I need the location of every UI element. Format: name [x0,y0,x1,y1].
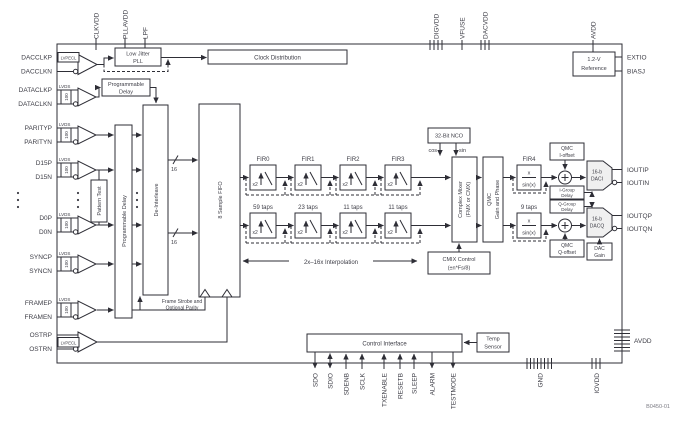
fir-chain: x2 x2 x2 x2 FIR0 FIR1 FIR2 FIR3 x2 x2 x2… [240,157,451,266]
parity-buffer [78,126,96,144]
fir1-label: FIR1 [301,157,315,163]
pin-label-extio: EXTIO [627,55,647,62]
buffer-type-label: LVDS [59,297,70,302]
pin-label-d15p: D15P [36,160,52,167]
qmc-label: QMC [487,193,493,206]
pin-label-dacvdd: DACVDD [483,11,490,39]
fir-x2: x2 [298,182,304,188]
pin-label-ioutqp: IOUTQP [627,213,652,220]
buffer-type-label: LVDS [59,122,70,127]
control-section: Control Interface Temp Sensor SDO SDIO S… [307,333,601,409]
pin-label-framep: FRAMEP [25,300,52,307]
fir-x2: x2 [298,230,304,236]
fir2-label: FIR2 [346,157,360,163]
fir3-taps: 11 taps [388,205,407,211]
prog-delay-vertical-label: Programmable Delay [122,195,128,247]
pin-label-framen: FRAMEN [25,314,53,321]
dacq-label: DACQ [590,224,605,230]
pll-label: Low Jitter [126,52,150,58]
inverting-bubble [73,69,77,73]
reference-label: Reference [581,66,606,72]
cos-label: cos [428,148,437,154]
qmc-q-offset-label: QMC [561,243,573,249]
sync-buffer [78,255,96,273]
pin-label-parityn: PARITYN [24,139,52,146]
dataclk-buffer [78,88,96,106]
termination-label: 100 [64,93,69,101]
prog-delay-label: Delay [119,90,133,96]
pin-label-digvdd: DIGVDD [434,13,441,39]
pin-label-ostrn: OSTRN [29,346,52,353]
deinterleave-label: De-Interleave [154,183,160,216]
right-pins: EXTIO BIASJ IOUTIP IOUTIN IOUTQP IOUTQN … [614,55,653,352]
q-group-delay-label: Delay [561,207,573,212]
fir-x2: x2 [388,182,394,188]
pin-label-resetb: RESETB [398,373,405,399]
fir-x2: x2 [253,230,259,236]
reference-label: 1.2-V [587,57,600,63]
top-pins: CLKVDD PLLAVDD LPF DIGVDD VFUSE DACVDD A… [94,10,598,52]
figure-code: B0450-01 [646,404,670,410]
prog-delay-label: Programmable [108,82,144,88]
clock-distribution-label: Clock Distribution [254,56,301,62]
mixer-label: Complex Mixer [458,181,464,218]
fifo-label: 8 Sample FIFO [218,181,224,219]
frame-strobe-label: Optional Parity [166,306,199,312]
mixer-label: (FMX or CMX) [466,182,472,218]
pin-label-avdd-top: AVDD [591,21,598,39]
pin-label-d0p: D0P [39,215,52,222]
pin-label-d15n: D15N [35,174,52,181]
dac-gain-label: Gain [594,253,605,259]
bus-width-label: 16 [171,167,177,173]
pin-label-ioutip: IOUTIP [627,167,649,174]
buffer-type-label: LVDS [59,84,70,89]
pin-label-txenable: TXENABLE [382,372,389,407]
pin-label-iovdd: IOVDD [594,373,601,394]
i-group-delay-label: Delay [561,193,573,198]
nco-mixer: 32-Bit NCO cos sin Complex Mixer (FMX or… [428,128,516,274]
pll-label: PLL [133,59,143,65]
pin-label-parityp: PARITYP [25,125,52,132]
qmc-i-offset-label: I-offset [559,153,575,159]
pin-label-lpf: LPF [143,27,150,39]
pattern-test-label: Pattern Test [97,186,103,216]
fir0-label: FIR0 [256,157,270,163]
output-stage: FIR4 x sin(x) 9 taps x sin(x) QMC I-offs… [513,143,622,260]
block-reference [573,52,615,76]
block-diagram: CLKVDD PLLAVDD LPF DIGVDD VFUSE DACVDD A… [0,0,697,433]
pin-label-sclk: SCLK [360,372,367,390]
buffer-type-label: LVDS [59,251,70,256]
fir-x2: x2 [253,182,259,188]
dacclk-buffer [78,55,97,75]
fir-x2: x2 [343,230,349,236]
daci-label: DACI [591,177,603,183]
pin-label-avdd-right: AVDD [634,338,652,345]
pin-label-dacclkp: DACCLKP [21,55,52,62]
pin-label-pllavdd: PLLAVDD [123,10,130,39]
temp-sensor-label: Sensor [484,345,502,351]
sinc-numerator: x [528,219,531,225]
cmix-label: (±n*Fs/8) [448,266,471,272]
i-group-delay-label: I-Group [559,188,575,193]
pin-label-syncp: SYNCP [30,254,52,261]
bus-width-label: 16 [171,240,177,246]
data-path: Pattern Test Programmable Delay De-Inter… [91,104,240,342]
temp-sensor-label: Temp [486,337,499,343]
sin-label: sin [459,148,466,154]
fir1-taps: 23 taps [298,205,318,211]
fir4-label: FIR4 [522,157,536,163]
d15-buffer [78,161,96,179]
buffer-type-label: LVDS [59,212,70,217]
buffer-type-label: LVDS [59,157,70,162]
pin-label-dacclkn: DACCLKN [21,69,52,76]
pin-label-dataclkp: DATACLKP [19,87,52,94]
pin-label-testmode: TESTMODE [451,372,458,409]
pin-label-ioutqn: IOUTQN [627,226,653,233]
sinc-denominator: sin(x) [522,231,536,237]
termination-label: 100 [64,166,69,174]
block-complex-mixer [452,157,477,242]
termination-label: 100 [64,260,69,268]
pin-label-sdo: SDO [313,373,320,387]
reference-section: 1.2-V Reference [573,52,622,76]
dac-gain-label: DAC [594,246,605,252]
sinc-numerator: x [528,171,531,177]
fir4-taps: 9 taps [521,205,537,211]
qmc-q-offset-label: Q-offset [558,250,576,256]
fir2-taps: 11 taps [343,205,362,211]
pin-label-dataclkn: DATACLKN [18,101,52,108]
block-dacq [587,208,612,237]
interpolation-label: 2x–16x Interpolation [304,260,358,266]
fir0-taps: 59 taps [253,205,273,211]
pin-label-sdenb: SDENB [344,373,351,395]
fir-x2: x2 [388,230,394,236]
pin-label-sleep: SLEEP [412,373,419,394]
pin-label-gnd: GND [538,373,545,388]
frame-strobe-label: Frame Strobe and [162,299,203,305]
daci-label: 16-b [592,170,602,176]
pin-label-vfuse: VFUSE [460,17,467,39]
q-group-delay-label: Q-Group [558,202,576,207]
pin-label-ostrp: OSTRP [30,332,52,339]
diagram-canvas: CLKVDD PLLAVDD LPF DIGVDD VFUSE DACVDD A… [0,0,697,433]
frame-buffer [78,301,96,319]
pin-label-biasj: BIASJ [627,69,645,76]
pin-label-alarm: ALARM [430,373,437,395]
ostr-buffer [78,332,97,352]
cmix-label: CMIX Control [442,257,475,263]
qmc-label: Gain and Phase [495,180,501,219]
pin-label-d0n: D0N [39,229,52,236]
pin-label-syncn: SYNCN [29,268,52,275]
control-interface-label: Control Interface [362,342,407,348]
pin-label-sdio: SDIO [328,373,335,389]
dacq-label: 16-b [592,217,602,223]
fir-x2: x2 [343,182,349,188]
qmc-i-offset-label: QMC [561,146,573,152]
fir3-label: FIR3 [391,157,405,163]
nco-label: 32-Bit NCO [435,134,464,140]
buffer-type-label: LVPECL [61,341,77,346]
termination-label: 100 [64,131,69,139]
clock-path: Low Jitter PLL Clock Distribution Progra… [96,48,347,103]
block-daci [587,161,612,190]
pin-label-ioutin: IOUTIN [627,180,649,187]
left-pins: DACCLKP DACCLKN DATACLKP DATACLKN PARITY… [17,55,52,354]
termination-label: 100 [64,221,69,229]
sinc-denominator: sin(x) [522,183,536,189]
buffer-type-label: LVPECL [61,56,77,61]
pin-label-clkvdd: CLKVDD [94,12,101,39]
termination-label: 100 [64,306,69,314]
